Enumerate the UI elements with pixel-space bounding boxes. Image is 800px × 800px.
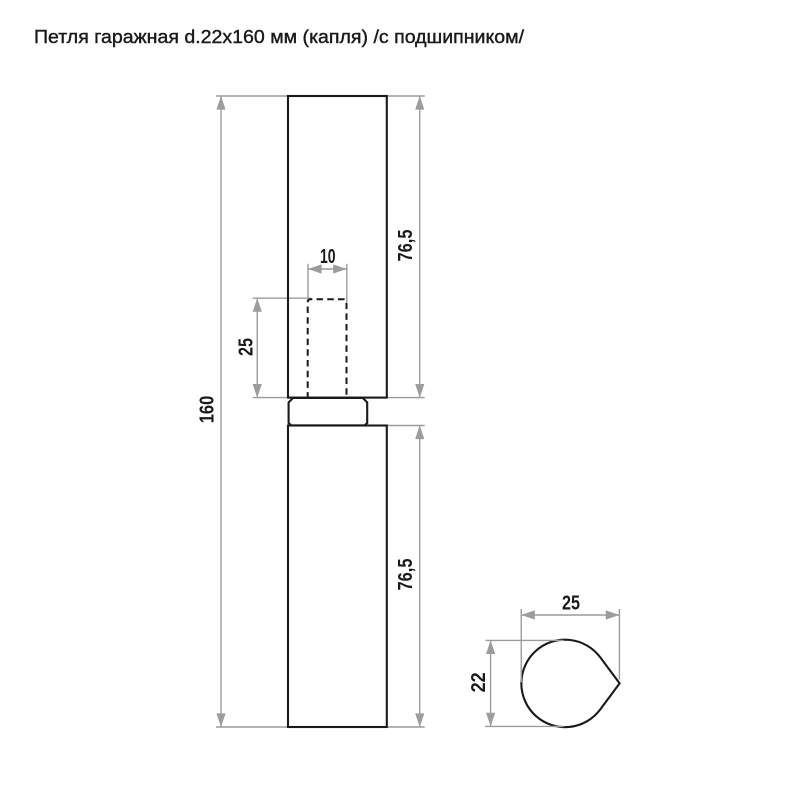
svg-text:25: 25 xyxy=(562,593,580,615)
svg-text:Петля гаражная d.22x160 мм (ка: Петля гаражная d.22x160 мм (капля) /с по… xyxy=(34,26,525,47)
svg-text:25: 25 xyxy=(236,338,258,356)
svg-text:10: 10 xyxy=(320,246,336,268)
svg-text:22: 22 xyxy=(468,672,490,692)
svg-text:76,5: 76,5 xyxy=(395,230,417,262)
svg-text:76,5: 76,5 xyxy=(395,559,417,591)
svg-text:160: 160 xyxy=(197,396,219,424)
